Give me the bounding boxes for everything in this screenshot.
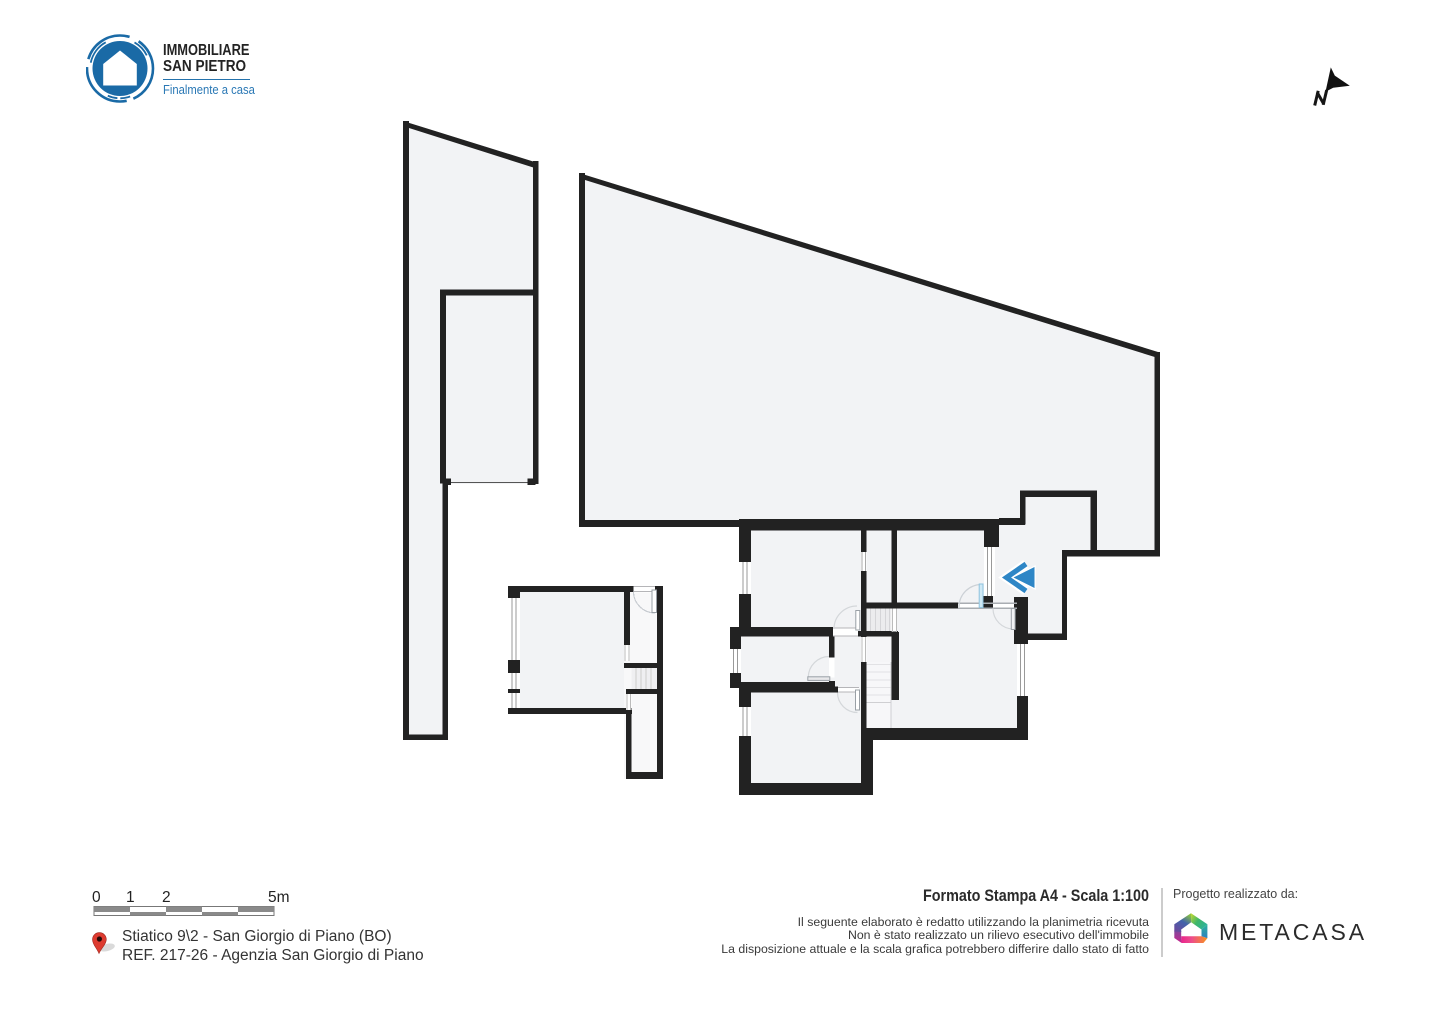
svg-text:0: 0 bbox=[92, 889, 101, 906]
svg-text:1: 1 bbox=[126, 889, 135, 906]
svg-text:2: 2 bbox=[162, 889, 171, 906]
svg-text:5m: 5m bbox=[268, 889, 290, 906]
